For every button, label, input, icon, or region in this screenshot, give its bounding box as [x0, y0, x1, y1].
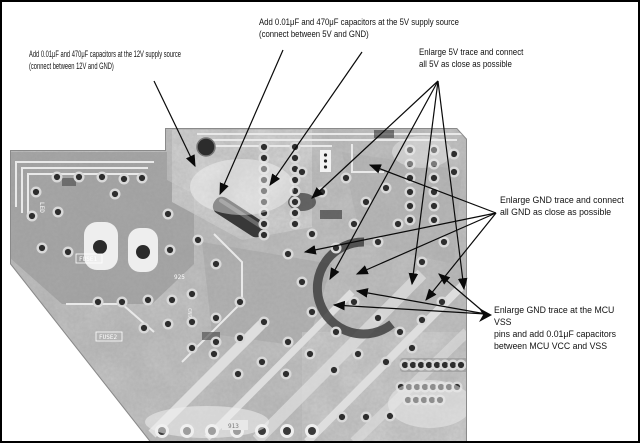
silkscreen-925: 925	[174, 274, 185, 281]
annotation-enlarge-gnd: Enlarge GND trace and connect all GND as…	[500, 194, 624, 218]
pcb-board-art: FUSE1 FUSE2 913 925 LED CN9	[2, 102, 482, 441]
annotated-pcb-figure: FUSE1 FUSE2 913 925 LED CN9	[0, 0, 640, 443]
annotation-cap-5v: Add 0.01μF and 470μF capacitors at the 5…	[259, 16, 459, 40]
annotation-cap-12v: Add 0.01μF and 470μF capacitors at the 1…	[29, 48, 181, 72]
arrowhead-mcu-apex	[479, 308, 492, 322]
silkscreen-fuse2: FUSE2	[99, 334, 117, 341]
silkscreen-cn9: CN9	[186, 308, 192, 318]
silkscreen-913: 913	[228, 423, 239, 430]
annotation-enlarge-5v: Enlarge 5V trace and connect all 5V as c…	[419, 46, 523, 70]
silkscreen-led: LED	[38, 202, 45, 213]
annotation-mcu-vss: Enlarge GND trace at the MCU VSS pins an…	[494, 304, 634, 352]
silkscreen-fuse1: FUSE1	[79, 256, 97, 263]
